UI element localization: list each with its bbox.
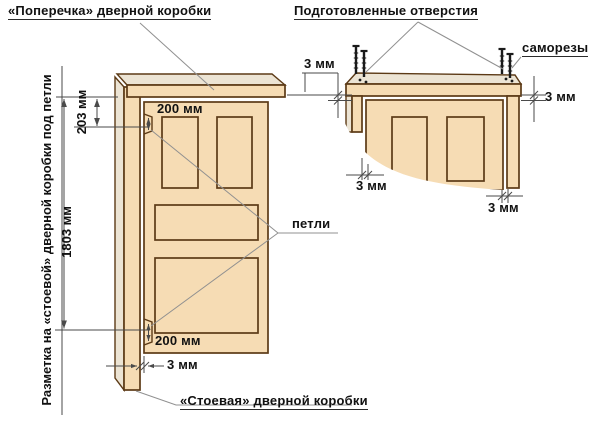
dim-200mm-top: 200 мм xyxy=(157,102,203,116)
jamb-front-face xyxy=(124,87,140,390)
header-front-face xyxy=(127,85,285,97)
dim-3mm-detail-top-left: 3 мм xyxy=(304,57,335,71)
door-panel-top-left xyxy=(162,117,198,188)
dim-3mm-detail-bottom-right: 3 мм xyxy=(488,201,519,215)
door-frame-hinge-marking-diagram: 203 мм 1803 мм Разметка на «стоевой» две… xyxy=(0,0,600,422)
door-panel-bottom xyxy=(155,258,258,333)
side-note-label: Разметка на «стоевой» дверной коробки по… xyxy=(39,74,54,405)
header-top-face xyxy=(117,74,285,85)
detail-header-top-face xyxy=(346,73,521,84)
screw-icon xyxy=(499,49,506,74)
hinges-label: петли xyxy=(292,217,330,231)
screw-icon xyxy=(353,46,360,74)
dim-203mm: 203 мм xyxy=(74,90,89,135)
prepared-hole-dot xyxy=(505,78,508,81)
frame-header-title: «Поперечка» дверной коробки xyxy=(8,4,211,20)
jamb-side-face xyxy=(115,77,124,390)
door-panel-middle xyxy=(155,205,258,240)
prepared-holes-title: Подготовленные отверстия xyxy=(294,4,478,20)
detail-door-panel-right xyxy=(447,117,484,181)
dim-3mm-main: 3 мм xyxy=(167,358,198,372)
dim-1803mm: 1803 мм xyxy=(59,206,74,258)
frame-post-label: «Стоевая» дверной коробки xyxy=(180,394,368,410)
detail-left-jamb xyxy=(352,96,362,132)
prepared-hole-dot xyxy=(365,81,368,84)
dim-3mm-detail-top-right: 3 мм xyxy=(545,90,576,104)
dim-200mm-bottom: 200 мм xyxy=(155,334,201,348)
dim-3mm-detail-bottom-left: 3 мм xyxy=(356,179,387,193)
door-panel-top-right xyxy=(217,117,252,188)
screws-label: саморезы xyxy=(522,41,588,57)
detail-right-jamb xyxy=(507,96,519,188)
detail-left-jamb-side xyxy=(346,96,352,132)
prepared-hole-dot xyxy=(359,79,362,82)
prepared-hole-dot xyxy=(511,80,514,83)
detail-header-front-face xyxy=(346,84,521,96)
